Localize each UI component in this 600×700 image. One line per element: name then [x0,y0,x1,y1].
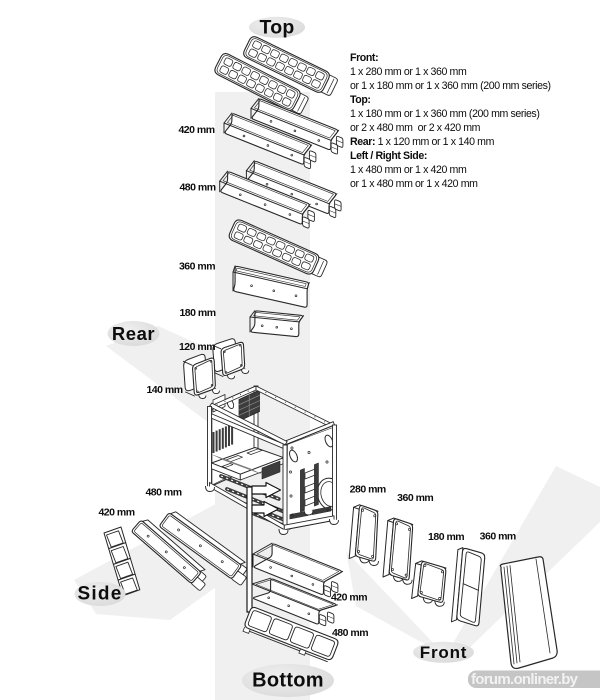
svg-text:Rear: 1 x 120 mm or 1 x 140 mm: Rear: 1 x 120 mm or 1 x 140 mm [350,136,495,148]
svg-text:Bottom: Bottom [252,670,324,692]
svg-text:Top: Top [260,16,295,38]
svg-text:480 mm: 480 mm [332,627,368,639]
svg-text:Side: Side [78,584,123,605]
svg-text:120 mm: 120 mm [179,341,215,353]
svg-text:or 1 x 480 mm or 1 x 420 mm: or 1 x 480 mm or 1 x 420 mm [350,178,478,190]
svg-text:180 mm: 180 mm [179,307,215,319]
svg-text:or 1 x 180 mm or 1 x 360 mm (2: or 1 x 180 mm or 1 x 360 mm (200 mm seri… [350,80,551,92]
svg-text:Top:: Top: [350,94,371,106]
svg-text:or 2 x 480 mm or 2 x 420 mm: or 2 x 480 mm or 2 x 420 mm [350,122,481,134]
svg-text:360 mm: 360 mm [179,261,215,273]
svg-text:420 mm: 420 mm [178,124,214,136]
svg-text:360 mm: 360 mm [480,530,516,542]
svg-text:420 mm: 420 mm [98,507,134,519]
svg-text:forum.onliner.by: forum.onliner.by [471,671,579,688]
svg-text:280 mm: 280 mm [350,484,386,496]
svg-text:1 x 280 mm or 1 x 360 mm: 1 x 280 mm or 1 x 360 mm [350,66,467,78]
svg-text:140 mm: 140 mm [146,384,182,396]
svg-text:Left / Right Side:: Left / Right Side: [350,150,427,162]
svg-text:Front:: Front: [350,52,378,64]
svg-text:480 mm: 480 mm [179,182,215,194]
svg-text:Front: Front [420,643,467,662]
svg-text:480 mm: 480 mm [145,487,181,499]
svg-text:420 mm: 420 mm [331,592,367,604]
svg-text:1 x 180 mm or 1 x 360 mm (200: 1 x 180 mm or 1 x 360 mm (200 mm series) [350,108,539,120]
svg-text:1 x 480 mm or 1 x 420 mm: 1 x 480 mm or 1 x 420 mm [350,164,467,176]
svg-text:360 mm: 360 mm [397,492,433,504]
svg-text:Rear: Rear [112,323,155,344]
svg-text:180 mm: 180 mm [428,531,464,543]
